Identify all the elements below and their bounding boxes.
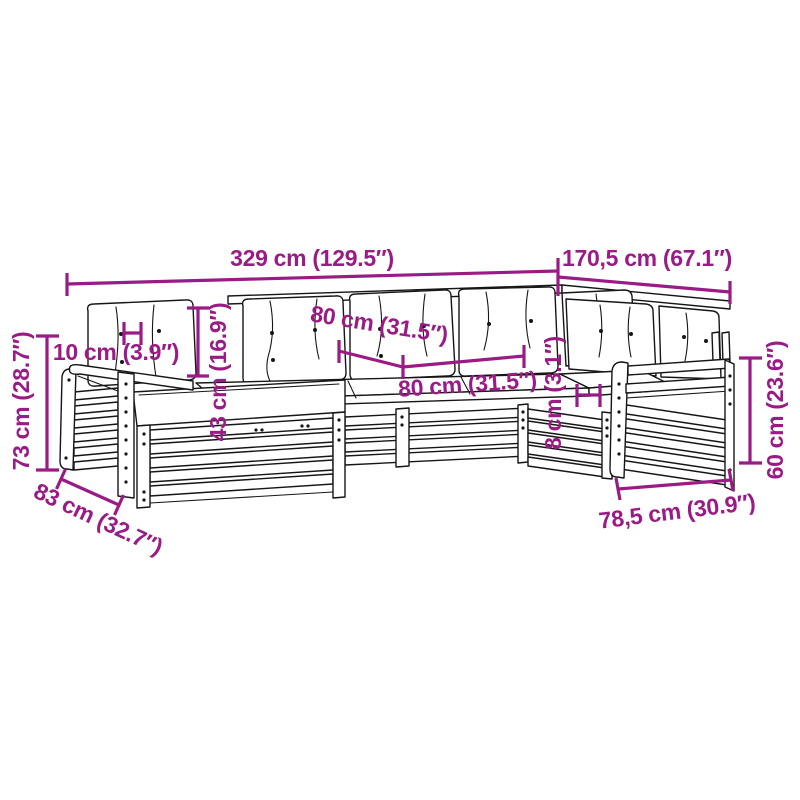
dimension-label: 10 cm (3.9″) xyxy=(53,339,179,365)
slat xyxy=(74,388,118,400)
dimension-label: 329 cm (129.5″) xyxy=(230,245,394,271)
dimension-label: 170,5 cm (67.1″) xyxy=(562,245,732,271)
armrest-front-stile xyxy=(60,369,76,470)
ottoman xyxy=(133,380,345,508)
post xyxy=(333,412,345,498)
dimension-label: 43 cm (16.9″) xyxy=(205,303,231,442)
slat xyxy=(74,416,118,428)
product-dimension-diagram: 329 cm (129.5″) 170,5 cm (67.1″) 73 cm (… xyxy=(0,0,800,800)
slat xyxy=(74,402,118,414)
wing-stile xyxy=(610,362,628,478)
slat xyxy=(74,430,118,442)
sofa-dimension-illustration: 329 cm (129.5″) 170,5 cm (67.1″) 73 cm (… xyxy=(0,0,800,800)
back-skirt xyxy=(345,404,528,467)
dimension-line xyxy=(67,271,558,284)
dimension-left-height: 73 cm (28.7″) xyxy=(8,332,59,471)
slat xyxy=(74,444,118,456)
post xyxy=(137,425,150,508)
armrest-bracket xyxy=(712,332,720,362)
slat xyxy=(74,458,118,470)
dimension-line xyxy=(618,480,731,489)
armrest-mid-stile xyxy=(118,372,134,498)
dimension-label: 78,5 cm (30.9″) xyxy=(597,489,756,534)
dimension-tick xyxy=(616,478,620,500)
dimension-label: 60 cm (23.6″) xyxy=(762,341,788,480)
dimension-label: 73 cm (28.7″) xyxy=(8,332,34,471)
dimension-right-height: 60 cm (23.6″) xyxy=(739,341,788,480)
dimension-label: 8 cm (3.1″) xyxy=(540,336,566,450)
